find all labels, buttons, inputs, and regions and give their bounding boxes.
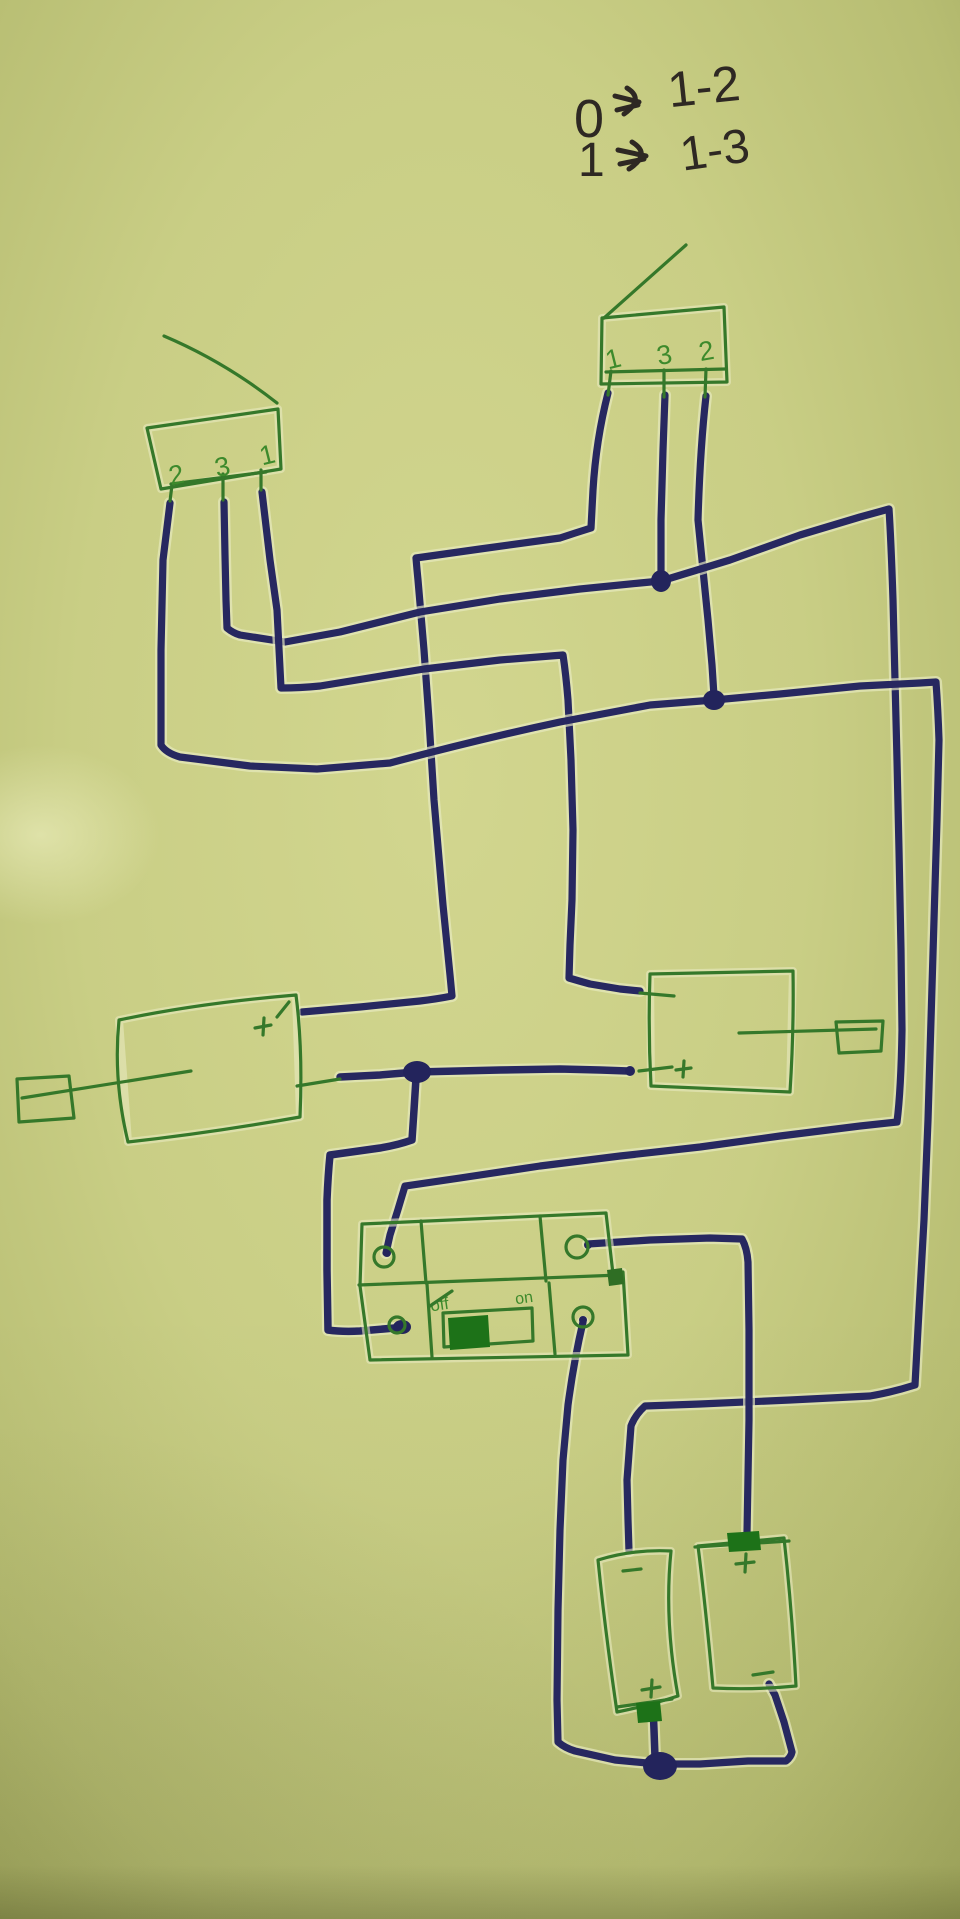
svg-text:1-2: 1-2	[665, 55, 743, 118]
svg-text:1-3: 1-3	[677, 119, 753, 181]
svg-text:1: 1	[578, 134, 605, 187]
svg-text:on: on	[514, 1289, 534, 1308]
